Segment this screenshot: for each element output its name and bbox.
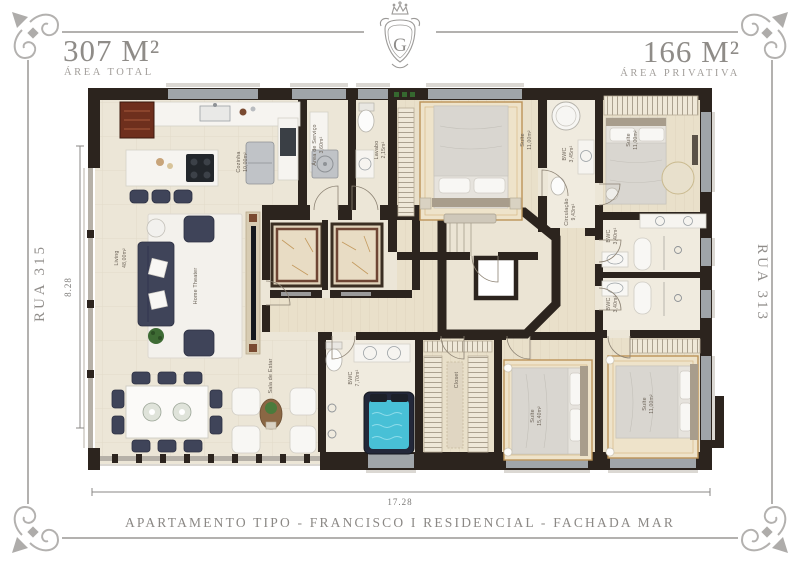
logo-crest: G bbox=[380, 2, 419, 68]
stool bbox=[130, 190, 148, 203]
area-total-value: 307 M² bbox=[63, 33, 160, 68]
toilet bbox=[326, 349, 342, 371]
plant bbox=[265, 402, 277, 414]
pouf bbox=[606, 188, 618, 200]
stool bbox=[152, 190, 170, 203]
area-private-label: ÁREA PRIVATIVA bbox=[620, 67, 740, 79]
closet-strip bbox=[604, 96, 698, 115]
street-label-left: RUA 315 bbox=[32, 244, 48, 322]
room-area: 2,15m² bbox=[381, 141, 387, 158]
area-private-value: 166 M² bbox=[643, 34, 740, 69]
room-label: BWC bbox=[562, 147, 568, 160]
logo-letter: G bbox=[393, 35, 407, 56]
room-label: Home Theater bbox=[193, 268, 199, 305]
room-label: Lavabo bbox=[374, 141, 380, 160]
room-label: BWC bbox=[606, 297, 612, 310]
plant bbox=[148, 328, 164, 344]
room-label: BWC bbox=[348, 371, 354, 384]
bench bbox=[444, 214, 496, 223]
crown-icon bbox=[380, 2, 419, 26]
chair bbox=[184, 440, 202, 452]
sconce bbox=[504, 448, 512, 456]
round-rug bbox=[662, 162, 694, 194]
dresser bbox=[692, 135, 698, 165]
floor-plan-canvas: G 307 M² ÁREA TOTAL 166 M² ÁREA PRIVATIV… bbox=[0, 0, 800, 565]
room-label: Circulação bbox=[564, 198, 570, 225]
living bbox=[138, 212, 260, 358]
chair bbox=[112, 390, 124, 408]
room-area: 7,70m² bbox=[355, 369, 361, 386]
closet-strip bbox=[398, 108, 414, 216]
room-area: 3,40m² bbox=[613, 295, 619, 312]
cooktop bbox=[186, 154, 214, 182]
room-label: Suíte bbox=[642, 397, 648, 411]
dining-table bbox=[126, 386, 208, 438]
room-area: 11,00m² bbox=[527, 130, 533, 150]
stair-core bbox=[476, 258, 516, 298]
floor-plan: Cozinha 10,00m² Área de Serviço 3,60m² L… bbox=[83, 83, 724, 473]
armchair bbox=[184, 216, 214, 242]
closet-shelf bbox=[424, 341, 492, 352]
tub bbox=[634, 238, 651, 270]
elevator-door bbox=[281, 292, 311, 296]
area-total-label: ÁREA TOTAL bbox=[64, 66, 154, 78]
chair bbox=[132, 372, 150, 384]
floor-plan-sheet: G 307 M² ÁREA TOTAL 166 M² ÁREA PRIVATIV… bbox=[0, 0, 800, 565]
side-table bbox=[147, 219, 165, 237]
nightstand bbox=[510, 198, 521, 209]
stool bbox=[174, 190, 192, 203]
room-label: Living bbox=[114, 250, 120, 265]
sconce bbox=[504, 364, 512, 372]
elevator-door bbox=[341, 292, 371, 296]
tv bbox=[251, 226, 256, 340]
room-label: Sala de Estar bbox=[268, 359, 274, 394]
room-area: 10,00m² bbox=[243, 152, 249, 172]
room-area: 3,60m² bbox=[319, 136, 325, 153]
oven bbox=[280, 128, 296, 156]
chair bbox=[158, 440, 176, 452]
sconce bbox=[606, 448, 614, 456]
room-label: Cozinha bbox=[236, 151, 242, 172]
room-label: Suíte bbox=[626, 133, 632, 147]
chair bbox=[158, 372, 176, 384]
closet-strip bbox=[630, 339, 700, 353]
wardrobe bbox=[468, 356, 488, 452]
room-area: 9,43m² bbox=[571, 203, 577, 220]
kitchen-sink bbox=[200, 106, 230, 121]
room-label: BWC bbox=[606, 229, 612, 242]
wardrobe bbox=[424, 356, 442, 452]
armchair bbox=[290, 388, 316, 415]
chair bbox=[184, 372, 202, 384]
chair bbox=[132, 440, 150, 452]
chair bbox=[210, 390, 222, 408]
room-area: 11,00m² bbox=[633, 130, 639, 150]
armchair bbox=[184, 330, 214, 356]
dimension-height: 8.28 bbox=[63, 277, 73, 297]
room-area: 48,00m² bbox=[122, 248, 128, 268]
dimension-width: 17.28 bbox=[387, 497, 412, 507]
footer-title: APARTAMENTO TIPO - FRANCISCO I RESIDENCI… bbox=[125, 515, 675, 530]
room-area: 15,40m² bbox=[537, 406, 543, 426]
room-label: Closet bbox=[454, 371, 460, 388]
suite-4 bbox=[504, 360, 592, 460]
chair bbox=[210, 416, 222, 434]
room-label: Área de Serviço bbox=[311, 124, 318, 165]
toilet bbox=[551, 177, 565, 195]
room-area: 3,45m² bbox=[569, 145, 575, 162]
sofa bbox=[138, 242, 174, 326]
room-area: 11,00m² bbox=[649, 394, 655, 414]
room-area: 3,40m² bbox=[613, 227, 619, 244]
nightstand bbox=[420, 198, 431, 209]
armchair bbox=[290, 426, 316, 453]
street-label-right: RUA 313 bbox=[754, 244, 770, 322]
room-label: Suíte bbox=[520, 133, 526, 147]
armchair bbox=[232, 388, 260, 415]
tub bbox=[634, 282, 651, 314]
toilet bbox=[358, 110, 374, 132]
chair bbox=[112, 416, 124, 434]
sconce bbox=[606, 356, 614, 364]
room-label: Suíte bbox=[530, 409, 536, 423]
armchair bbox=[232, 426, 260, 453]
